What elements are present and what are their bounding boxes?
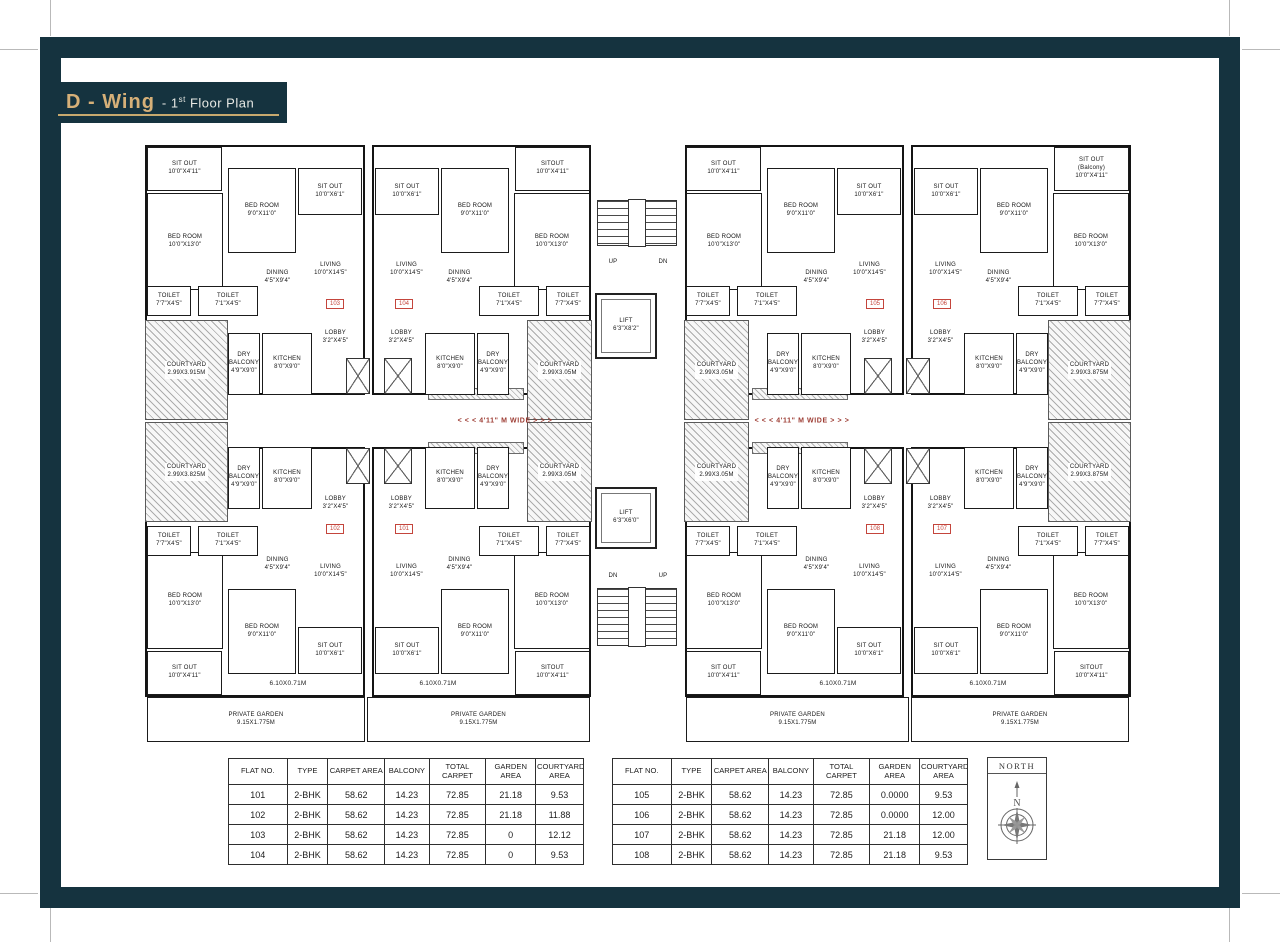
room-bed-room: BED ROOM 9'0"X11'0" [228, 589, 296, 674]
open-dining-label: DINING 4'5"X9'4" [447, 270, 473, 286]
open-up-label: UP [609, 259, 618, 267]
room-bed-room-label: BED ROOM 9'0"X11'0" [997, 203, 1031, 219]
hatch-courtyard: COURTYARD 2.99X3.05M [527, 422, 592, 522]
room-toilet-label: TOILET 7'7"X4'5" [695, 533, 721, 549]
room-bed-room: BED ROOM 9'0"X11'0" [767, 168, 835, 253]
room-dry-label: DRY BALCONY 4'9"X9'0" [229, 466, 259, 489]
room-kitchen-label: KITCHEN 8'0"X9'0" [436, 470, 464, 486]
shaft [906, 358, 930, 394]
open-dining: DINING 4'5"X9'4" [971, 250, 1026, 305]
table-cell: 58.62 [712, 845, 769, 865]
flat-number-marker: 106 [933, 299, 951, 309]
room-bed-room: BED ROOM 10'0"X13'0" [147, 552, 223, 649]
room-kitchen: KITCHEN 8'0"X9'0" [262, 333, 312, 395]
room-sit-out: SIT OUT 10'0"X6'1" [298, 627, 362, 674]
room-dry: DRY BALCONY 4'9"X9'0" [767, 447, 799, 509]
table-cell: 12.12 [536, 825, 584, 845]
open-dining-label: DINING 4'5"X9'4" [265, 557, 291, 573]
room-sitout: SITOUT 10'0"X4'11" [515, 651, 590, 695]
room-toilet-label: TOILET 7'7"X4'5" [1094, 293, 1120, 309]
open-living: LIVING 10'0"X14'5" [372, 532, 441, 612]
clabel-4-11-m-wide-label: < < < 4'11" M WIDE > > > [755, 416, 850, 425]
stair-landing [628, 587, 646, 647]
hatch-courtyard-label: COURTYARD 2.99X3.875M [1068, 463, 1111, 481]
table-cell: 72.85 [813, 805, 870, 825]
room-bed-room: BED ROOM 9'0"X11'0" [441, 589, 509, 674]
open-lobby-label: LOBBY 3'2"X4'5" [862, 496, 888, 512]
room-toilet: TOILET 7'1"X4'5" [1018, 286, 1078, 316]
shaft [906, 448, 930, 484]
room-toilet-label: TOILET 7'7"X4'5" [156, 533, 182, 549]
table-cell: 12.00 [920, 825, 968, 845]
table-cell: 9.53 [920, 785, 968, 805]
room-toilet-label: TOILET 7'1"X4'5" [754, 293, 780, 309]
room-sitout: SITOUT 10'0"X4'11" [515, 147, 590, 191]
room-sit-out-label: SIT OUT 10'0"X6'1" [854, 184, 883, 200]
room-dry-label: DRY BALCONY 4'9"X9'0" [478, 352, 508, 375]
table-cell: 21.18 [870, 825, 920, 845]
room-toilet-label: TOILET 7'7"X4'5" [555, 293, 581, 309]
room-bed-room: BED ROOM 9'0"X11'0" [441, 168, 509, 253]
room-toilet-label: TOILET 7'7"X4'5" [695, 293, 721, 309]
clabel-4-11-m-wide: < < < 4'11" M WIDE > > > [755, 416, 850, 425]
column-header: TOTAL CARPET [813, 759, 870, 785]
open-living-label: LIVING 10'0"X14'5" [390, 262, 423, 278]
clabel-4-11-m-wide: < < < 4'11" M WIDE > > > [458, 416, 553, 425]
page-title-wing: D - Wing [66, 91, 155, 114]
open-living-label: LIVING 10'0"X14'5" [853, 564, 886, 580]
room-bed-room: BED ROOM 10'0"X13'0" [514, 552, 590, 649]
dlabel-6-10x0-71m: 6.10X0.71M [819, 680, 856, 688]
table-cell: 0 [486, 845, 536, 865]
room-sit-out-label: SIT OUT 10'0"X4'11" [707, 161, 739, 177]
garden-private-garden-label: PRIVATE GARDEN 9.15X1.775M [993, 712, 1048, 728]
hatch-courtyard-label: COURTYARD 2.99X3.825M [165, 463, 208, 481]
room-dry: DRY BALCONY 4'9"X9'0" [477, 333, 509, 395]
open-up: UP [648, 570, 678, 584]
open-living-label: LIVING 10'0"X14'5" [314, 262, 347, 278]
room-sit-out: SIT OUT 10'0"X4'11" [686, 651, 761, 695]
column-header: TYPE [287, 759, 328, 785]
open-living-label: LIVING 10'0"X14'5" [390, 564, 423, 580]
open-lobby-label: LOBBY 3'2"X4'5" [389, 496, 415, 512]
table-cell: 103 [229, 825, 288, 845]
hatch-courtyard: COURTYARD 2.99X3.825M [145, 422, 228, 522]
column-header: CARPET AREA [328, 759, 385, 785]
table-cell: 14.23 [385, 805, 429, 825]
open-dn-label: DN [658, 259, 667, 267]
room-dry-label: DRY BALCONY 4'9"X9'0" [229, 352, 259, 375]
column-header: TYPE [671, 759, 712, 785]
flat-number-marker: 104 [395, 299, 413, 309]
open-living: LIVING 10'0"X14'5" [911, 230, 980, 310]
room-sit-out: SIT OUT 10'0"X4'11" [147, 147, 222, 191]
room-bed-room-label: BED ROOM 10'0"X13'0" [1074, 234, 1108, 250]
table-cell: 72.85 [429, 785, 486, 805]
room-toilet: TOILET 7'1"X4'5" [479, 286, 539, 316]
room-bed-room-label: BED ROOM 10'0"X13'0" [535, 593, 569, 609]
shaft [346, 448, 370, 484]
room-sit-out-label: SIT OUT 10'0"X4'11" [168, 161, 200, 177]
room-bed-room: BED ROOM 10'0"X13'0" [1053, 552, 1129, 649]
table-cell: 21.18 [486, 785, 536, 805]
room-toilet: TOILET 7'7"X4'5" [147, 526, 191, 556]
room-sit-out: SIT OUT 10'0"X6'1" [837, 627, 901, 674]
dlabel-6-10x0-71m-label: 6.10X0.71M [819, 680, 856, 688]
room-sit-out: SIT OUT 10'0"X4'11" [147, 651, 222, 695]
flats-table-right: FLAT NO.TYPECARPET AREABALCONYTOTAL CARP… [612, 758, 968, 865]
north-letter: N [1013, 798, 1020, 809]
room-toilet-label: TOILET 7'7"X4'5" [555, 533, 581, 549]
room-toilet-label: TOILET 7'7"X4'5" [1094, 533, 1120, 549]
table-cell: 14.23 [385, 845, 429, 865]
table-cell: 72.85 [813, 785, 870, 805]
room-sit-out-label: SIT OUT 10'0"X6'1" [931, 184, 960, 200]
hatch-courtyard: COURTYARD 2.99X3.05M [684, 320, 749, 420]
table-cell: 58.62 [328, 845, 385, 865]
lift-lift: LIFT 6'3"X6'0" [595, 487, 657, 549]
room-bed-room-label: BED ROOM 10'0"X13'0" [535, 234, 569, 250]
table-cell: 58.62 [712, 805, 769, 825]
table-cell: 101 [229, 785, 288, 805]
room-bed-room-label: BED ROOM 9'0"X11'0" [784, 624, 818, 640]
open-dining: DINING 4'5"X9'4" [432, 537, 487, 592]
room-toilet: TOILET 7'7"X4'5" [546, 526, 590, 556]
table-cell: 105 [613, 785, 672, 805]
hatch-courtyard-label: COURTYARD 2.99X3.05M [695, 463, 738, 481]
column-header: COURTYARD AREA [536, 759, 584, 785]
dlabel-6-10x0-71m: 6.10X0.71M [969, 680, 1006, 688]
room-bed-room: BED ROOM 10'0"X13'0" [1053, 193, 1129, 290]
shaft [346, 358, 370, 394]
column-header: GARDEN AREA [870, 759, 920, 785]
room-sitout: SITOUT 10'0"X4'11" [1054, 651, 1129, 695]
column-header: BALCONY [769, 759, 813, 785]
room-sit-out-label: SIT OUT (Balcony) 10'0"X4'11" [1075, 157, 1107, 180]
room-dry: DRY BALCONY 4'9"X9'0" [228, 333, 260, 395]
table-cell: 9.53 [536, 785, 584, 805]
room-bed-room: BED ROOM 9'0"X11'0" [767, 589, 835, 674]
lift-lift-label: LIFT 6'3"X6'0" [612, 510, 640, 526]
room-bed-room-label: BED ROOM 10'0"X13'0" [707, 593, 741, 609]
table-cell: 72.85 [429, 845, 486, 865]
table-cell: 2-BHK [671, 825, 712, 845]
open-living: LIVING 10'0"X14'5" [296, 532, 365, 612]
hatch-courtyard-label: COURTYARD 2.99X3.915M [165, 361, 208, 379]
open-lobby: LOBBY 3'2"X4'5" [921, 321, 960, 355]
open-lobby: LOBBY 3'2"X4'5" [382, 487, 421, 521]
open-lobby: LOBBY 3'2"X4'5" [316, 321, 355, 355]
hatch-courtyard: COURTYARD 2.99X3.915M [145, 320, 228, 420]
table-cell: 58.62 [328, 825, 385, 845]
column-header: FLAT NO. [229, 759, 288, 785]
hatch-courtyard: COURTYARD 2.99X3.875M [1048, 320, 1131, 420]
open-living-label: LIVING 10'0"X14'5" [929, 262, 962, 278]
room-kitchen-label: KITCHEN 8'0"X9'0" [812, 356, 840, 372]
open-living-label: LIVING 10'0"X14'5" [314, 564, 347, 580]
hatch-courtyard: COURTYARD 2.99X3.05M [527, 320, 592, 420]
flat-number-marker: 108 [866, 524, 884, 534]
open-dn-label: DN [608, 573, 617, 581]
room-kitchen: KITCHEN 8'0"X9'0" [262, 447, 312, 509]
table-row: 1042-BHK58.6214.2372.8509.53 [229, 845, 584, 865]
table-cell: 14.23 [769, 805, 813, 825]
dlabel-6-10x0-71m: 6.10X0.71M [269, 680, 306, 688]
room-toilet: TOILET 7'7"X4'5" [147, 286, 191, 316]
table-cell: 2-BHK [671, 845, 712, 865]
open-living: LIVING 10'0"X14'5" [372, 230, 441, 310]
room-kitchen-label: KITCHEN 8'0"X9'0" [273, 356, 301, 372]
room-toilet-label: TOILET 7'1"X4'5" [215, 533, 241, 549]
hatch-courtyard-label: COURTYARD 2.99X3.875M [1068, 361, 1111, 379]
open-dn: DN [598, 570, 628, 584]
room-sit-out-label: SIT OUT 10'0"X6'1" [315, 643, 344, 659]
garden-private-garden-label: PRIVATE GARDEN 9.15X1.775M [770, 712, 825, 728]
open-lobby: LOBBY 3'2"X4'5" [855, 321, 894, 355]
table-cell: 72.85 [429, 805, 486, 825]
open-lobby-label: LOBBY 3'2"X4'5" [389, 330, 415, 346]
table-cell: 72.85 [813, 845, 870, 865]
open-dining: DINING 4'5"X9'4" [789, 537, 844, 592]
open-dining-label: DINING 4'5"X9'4" [986, 557, 1012, 573]
room-sit-out: SIT OUT 10'0"X6'1" [837, 168, 901, 215]
stair-landing [628, 199, 646, 247]
open-lobby-label: LOBBY 3'2"X4'5" [862, 330, 888, 346]
flat-number-marker: 103 [326, 299, 344, 309]
dlabel-6-10x0-71m-label: 6.10X0.71M [269, 680, 306, 688]
room-bed-room-label: BED ROOM 10'0"X13'0" [168, 234, 202, 250]
dlabel-6-10x0-71m-label: 6.10X0.71M [419, 680, 456, 688]
title-bar: D - Wing - 1st Floor Plan [40, 82, 287, 123]
room-sit-out-label: SIT OUT 10'0"X6'1" [392, 643, 421, 659]
room-bed-room: BED ROOM 10'0"X13'0" [147, 193, 223, 290]
dlabel-6-10x0-71m: 6.10X0.71M [419, 680, 456, 688]
table-row: 1062-BHK58.6214.2372.850.000012.00 [613, 805, 968, 825]
open-dining: DINING 4'5"X9'4" [250, 250, 305, 305]
room-sit-out: SIT OUT 10'0"X6'1" [375, 168, 439, 215]
open-lobby: LOBBY 3'2"X4'5" [316, 487, 355, 521]
room-sit-out: SIT OUT 10'0"X4'11" [686, 147, 761, 191]
table-cell: 9.53 [920, 845, 968, 865]
room-toilet-label: TOILET 7'1"X4'5" [1035, 293, 1061, 309]
room-bed-room-label: BED ROOM 10'0"X13'0" [168, 593, 202, 609]
room-kitchen: KITCHEN 8'0"X9'0" [425, 333, 475, 395]
room-sit-out: SIT OUT 10'0"X6'1" [914, 168, 978, 215]
table-row: 1082-BHK58.6214.2372.8521.189.53 [613, 845, 968, 865]
table-row: 1022-BHK58.6214.2372.8521.1811.88 [229, 805, 584, 825]
hatch-courtyard-label: COURTYARD 2.99X3.05M [695, 361, 738, 379]
room-bed-room-label: BED ROOM 9'0"X11'0" [784, 203, 818, 219]
open-dining-label: DINING 4'5"X9'4" [804, 270, 830, 286]
garden-private-garden: PRIVATE GARDEN 9.15X1.775M [147, 697, 365, 742]
open-lobby: LOBBY 3'2"X4'5" [382, 321, 421, 355]
room-bed-room-label: BED ROOM 10'0"X13'0" [1074, 593, 1108, 609]
table-cell: 2-BHK [671, 785, 712, 805]
room-bed-room: BED ROOM 9'0"X11'0" [228, 168, 296, 253]
table-cell: 58.62 [712, 825, 769, 845]
room-sit-out: SIT OUT 10'0"X6'1" [298, 168, 362, 215]
table-cell: 0 [486, 825, 536, 845]
table-cell: 2-BHK [671, 805, 712, 825]
open-living-label: LIVING 10'0"X14'5" [929, 564, 962, 580]
room-dry-label: DRY BALCONY 4'9"X9'0" [768, 466, 798, 489]
room-bed-room-label: BED ROOM 9'0"X11'0" [458, 624, 492, 640]
column-header: GARDEN AREA [486, 759, 536, 785]
room-toilet: TOILET 7'1"X4'5" [198, 526, 258, 556]
table-cell: 107 [613, 825, 672, 845]
room-kitchen: KITCHEN 8'0"X9'0" [801, 333, 851, 395]
hatch-courtyard: COURTYARD 2.99X3.875M [1048, 422, 1131, 522]
room-bed-room-label: BED ROOM 9'0"X11'0" [458, 203, 492, 219]
lift-lift-label: LIFT 6'3"X8'2" [612, 318, 640, 334]
room-sit-out-label: SIT OUT 10'0"X6'1" [392, 184, 421, 200]
room-bed-room-label: BED ROOM 10'0"X13'0" [707, 234, 741, 250]
table-cell: 11.88 [536, 805, 584, 825]
open-dining: DINING 4'5"X9'4" [789, 250, 844, 305]
shaft [384, 448, 412, 484]
room-toilet: TOILET 7'7"X4'5" [686, 526, 730, 556]
north-label: NORTH [988, 758, 1046, 774]
table-cell: 2-BHK [287, 805, 328, 825]
table-row: 1052-BHK58.6214.2372.850.00009.53 [613, 785, 968, 805]
table-cell: 21.18 [486, 805, 536, 825]
page-title-floor: - 1st Floor Plan [162, 95, 254, 110]
room-sitout-label: SITOUT 10'0"X4'11" [1075, 665, 1107, 681]
room-bed-room-label: BED ROOM 9'0"X11'0" [245, 624, 279, 640]
room-dry: DRY BALCONY 4'9"X9'0" [477, 447, 509, 509]
table-cell: 72.85 [429, 825, 486, 845]
open-up: UP [598, 256, 628, 270]
open-lobby-label: LOBBY 3'2"X4'5" [323, 496, 349, 512]
garden-private-garden: PRIVATE GARDEN 9.15X1.775M [911, 697, 1129, 742]
table-cell: 102 [229, 805, 288, 825]
table-cell: 21.18 [870, 845, 920, 865]
compass-rose-icon: N [990, 775, 1044, 847]
room-dry: DRY BALCONY 4'9"X9'0" [228, 447, 260, 509]
table-row: 1032-BHK58.6214.2372.85012.12 [229, 825, 584, 845]
open-dining-label: DINING 4'5"X9'4" [804, 557, 830, 573]
room-toilet: TOILET 7'1"X4'5" [1018, 526, 1078, 556]
lift-lift: LIFT 6'3"X8'2" [595, 293, 657, 359]
hatch-courtyard-label: COURTYARD 2.99X3.05M [538, 463, 581, 481]
room-sit-out-label: SIT OUT 10'0"X6'1" [315, 184, 344, 200]
column-header: COURTYARD AREA [920, 759, 968, 785]
room-bed-room-label: BED ROOM 9'0"X11'0" [997, 624, 1031, 640]
room-toilet-label: TOILET 7'1"X4'5" [1035, 533, 1061, 549]
room-sit-out-label: SIT OUT 10'0"X4'11" [707, 665, 739, 681]
room-dry: DRY BALCONY 4'9"X9'0" [1016, 447, 1048, 509]
stair [597, 200, 677, 246]
room-dry-label: DRY BALCONY 4'9"X9'0" [768, 352, 798, 375]
open-dining-label: DINING 4'5"X9'4" [447, 557, 473, 573]
table-cell: 14.23 [769, 845, 813, 865]
table-cell: 58.62 [328, 805, 385, 825]
room-dry-label: DRY BALCONY 4'9"X9'0" [478, 466, 508, 489]
room-toilet-label: TOILET 7'1"X4'5" [496, 533, 522, 549]
room-kitchen: KITCHEN 8'0"X9'0" [801, 447, 851, 509]
table-cell: 12.00 [920, 805, 968, 825]
stair [597, 588, 677, 646]
open-lobby: LOBBY 3'2"X4'5" [921, 487, 960, 521]
room-toilet: TOILET 7'1"X4'5" [479, 526, 539, 556]
room-sit-out: SIT OUT (Balcony) 10'0"X4'11" [1054, 147, 1129, 191]
room-kitchen-label: KITCHEN 8'0"X9'0" [975, 356, 1003, 372]
table-row: 1012-BHK58.6214.2372.8521.189.53 [229, 785, 584, 805]
flat-number-marker: 105 [866, 299, 884, 309]
column-header: FLAT NO. [613, 759, 672, 785]
garden-private-garden-label: PRIVATE GARDEN 9.15X1.775M [229, 712, 284, 728]
garden-private-garden-label: PRIVATE GARDEN 9.15X1.775M [451, 712, 506, 728]
open-lobby-label: LOBBY 3'2"X4'5" [928, 496, 954, 512]
open-up-label: UP [659, 573, 668, 581]
room-bed-room: BED ROOM 9'0"X11'0" [980, 589, 1048, 674]
clabel-4-11-m-wide-label: < < < 4'11" M WIDE > > > [458, 416, 553, 425]
table-cell: 2-BHK [287, 785, 328, 805]
open-dining: DINING 4'5"X9'4" [971, 537, 1026, 592]
room-toilet: TOILET 7'1"X4'5" [737, 526, 797, 556]
open-dining: DINING 4'5"X9'4" [250, 537, 305, 592]
room-sitout-label: SITOUT 10'0"X4'11" [536, 161, 568, 177]
room-kitchen-label: KITCHEN 8'0"X9'0" [975, 470, 1003, 486]
table-cell: 104 [229, 845, 288, 865]
table-cell: 14.23 [385, 785, 429, 805]
room-bed-room: BED ROOM 10'0"X13'0" [686, 552, 762, 649]
flat-number-marker: 107 [933, 524, 951, 534]
table-row: 1072-BHK58.6214.2372.8521.1812.00 [613, 825, 968, 845]
room-toilet: TOILET 7'7"X4'5" [686, 286, 730, 316]
room-bed-room-label: BED ROOM 9'0"X11'0" [245, 203, 279, 219]
room-toilet: TOILET 7'7"X4'5" [1085, 526, 1129, 556]
title-underline [58, 114, 279, 116]
table-cell: 72.85 [813, 825, 870, 845]
room-toilet: TOILET 7'7"X4'5" [546, 286, 590, 316]
room-kitchen-label: KITCHEN 8'0"X9'0" [812, 470, 840, 486]
open-lobby-label: LOBBY 3'2"X4'5" [928, 330, 954, 346]
room-sit-out-label: SIT OUT 10'0"X6'1" [931, 643, 960, 659]
shaft [864, 448, 892, 484]
flat-number-marker: 101 [395, 524, 413, 534]
table-cell: 106 [613, 805, 672, 825]
table-cell: 9.53 [536, 845, 584, 865]
open-living: LIVING 10'0"X14'5" [911, 532, 980, 612]
open-living: LIVING 10'0"X14'5" [296, 230, 365, 310]
room-sit-out-label: SIT OUT 10'0"X6'1" [854, 643, 883, 659]
room-toilet: TOILET 7'7"X4'5" [1085, 286, 1129, 316]
table-cell: 108 [613, 845, 672, 865]
flats-table-left: FLAT NO.TYPECARPET AREABALCONYTOTAL CARP… [228, 758, 584, 865]
room-toilet-label: TOILET 7'1"X4'5" [215, 293, 241, 309]
column-header: BALCONY [385, 759, 429, 785]
room-bed-room: BED ROOM 9'0"X11'0" [980, 168, 1048, 253]
room-toilet-label: TOILET 7'7"X4'5" [156, 293, 182, 309]
table-cell: 0.0000 [870, 805, 920, 825]
room-sit-out-label: SIT OUT 10'0"X4'11" [168, 665, 200, 681]
table-cell: 14.23 [385, 825, 429, 845]
table-cell: 14.23 [769, 785, 813, 805]
open-living: LIVING 10'0"X14'5" [835, 230, 904, 310]
garden-private-garden: PRIVATE GARDEN 9.15X1.775M [686, 697, 909, 742]
table-cell: 58.62 [712, 785, 769, 805]
table-cell: 14.23 [769, 825, 813, 845]
room-dry-label: DRY BALCONY 4'9"X9'0" [1017, 466, 1047, 489]
flat-number-marker: 102 [326, 524, 344, 534]
room-sitout-label: SITOUT 10'0"X4'11" [536, 665, 568, 681]
room-toilet: TOILET 7'1"X4'5" [737, 286, 797, 316]
open-living-label: LIVING 10'0"X14'5" [853, 262, 886, 278]
table-cell: 2-BHK [287, 845, 328, 865]
room-kitchen: KITCHEN 8'0"X9'0" [964, 333, 1014, 395]
room-toilet-label: TOILET 7'1"X4'5" [496, 293, 522, 309]
